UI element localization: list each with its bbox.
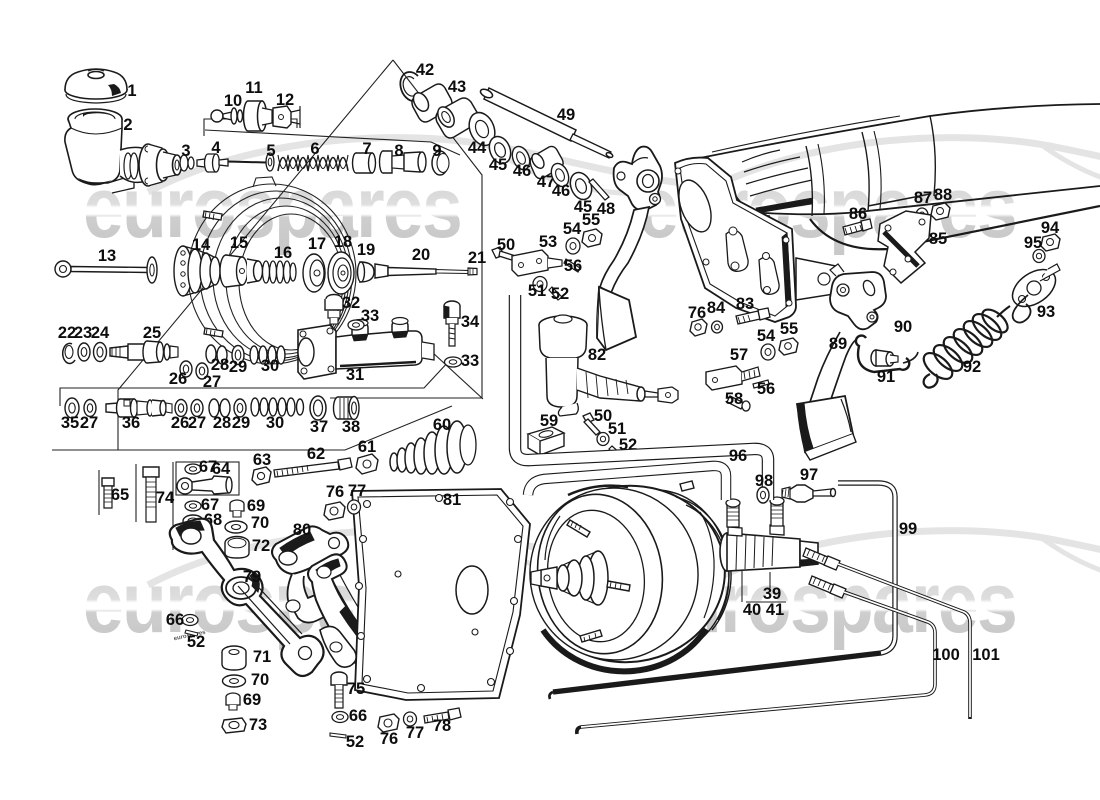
svg-text:74: 74 xyxy=(156,489,175,507)
svg-text:24: 24 xyxy=(91,324,110,342)
svg-text:41: 41 xyxy=(766,601,784,619)
svg-text:13: 13 xyxy=(98,247,116,265)
svg-text:82: 82 xyxy=(588,346,606,364)
svg-text:97: 97 xyxy=(800,466,818,484)
svg-text:25: 25 xyxy=(143,324,161,342)
svg-text:45: 45 xyxy=(489,156,507,174)
svg-text:76: 76 xyxy=(688,304,706,322)
svg-text:28: 28 xyxy=(213,414,231,432)
svg-text:72: 72 xyxy=(252,537,270,555)
svg-text:31: 31 xyxy=(346,366,364,384)
svg-text:29: 29 xyxy=(229,358,247,376)
svg-text:42: 42 xyxy=(416,61,434,79)
svg-text:29: 29 xyxy=(232,414,250,432)
svg-text:55: 55 xyxy=(780,320,798,338)
svg-text:1: 1 xyxy=(127,82,136,100)
svg-text:100: 100 xyxy=(932,646,960,664)
svg-text:43: 43 xyxy=(448,78,466,96)
svg-text:64: 64 xyxy=(212,460,231,478)
svg-text:18: 18 xyxy=(334,233,352,251)
svg-text:28: 28 xyxy=(211,356,229,374)
svg-text:81: 81 xyxy=(443,491,461,509)
svg-text:62: 62 xyxy=(307,445,325,463)
svg-text:8: 8 xyxy=(394,142,403,160)
svg-text:23: 23 xyxy=(74,324,92,342)
svg-text:56: 56 xyxy=(757,380,775,398)
svg-text:6: 6 xyxy=(310,140,319,158)
svg-text:35: 35 xyxy=(61,414,79,432)
svg-text:27: 27 xyxy=(188,414,206,432)
svg-text:2: 2 xyxy=(123,116,132,134)
svg-text:54: 54 xyxy=(563,220,582,238)
svg-text:75: 75 xyxy=(347,680,365,698)
svg-text:58: 58 xyxy=(725,390,743,408)
svg-text:88: 88 xyxy=(934,186,952,204)
svg-text:78: 78 xyxy=(433,717,451,735)
svg-text:51: 51 xyxy=(528,282,546,300)
svg-text:5: 5 xyxy=(266,142,275,160)
svg-text:14: 14 xyxy=(192,236,211,254)
svg-text:73: 73 xyxy=(249,716,267,734)
svg-text:9: 9 xyxy=(432,142,441,160)
svg-text:3: 3 xyxy=(181,142,190,160)
svg-text:70: 70 xyxy=(251,514,269,532)
svg-text:40: 40 xyxy=(743,601,761,619)
svg-text:57: 57 xyxy=(730,346,748,364)
svg-text:76: 76 xyxy=(380,730,398,748)
svg-text:44: 44 xyxy=(468,139,487,157)
svg-text:65: 65 xyxy=(111,486,129,504)
svg-text:36: 36 xyxy=(122,414,140,432)
svg-text:52: 52 xyxy=(551,285,569,303)
svg-text:46: 46 xyxy=(552,182,570,200)
svg-text:77: 77 xyxy=(406,724,424,742)
svg-text:59: 59 xyxy=(540,412,558,430)
svg-text:26: 26 xyxy=(169,370,187,388)
svg-text:80: 80 xyxy=(293,521,311,539)
svg-text:26: 26 xyxy=(171,414,189,432)
svg-text:86: 86 xyxy=(849,205,867,223)
svg-text:83: 83 xyxy=(736,295,754,313)
svg-text:21: 21 xyxy=(468,249,486,267)
svg-text:52: 52 xyxy=(187,633,205,651)
svg-text:56: 56 xyxy=(564,257,582,275)
svg-text:76: 76 xyxy=(326,483,344,501)
svg-text:54: 54 xyxy=(757,327,776,345)
svg-text:99: 99 xyxy=(899,520,917,538)
svg-text:27: 27 xyxy=(203,373,221,391)
svg-text:15: 15 xyxy=(230,234,248,252)
svg-text:19: 19 xyxy=(357,241,375,259)
svg-text:91: 91 xyxy=(877,368,895,386)
svg-text:69: 69 xyxy=(247,497,265,515)
svg-text:11: 11 xyxy=(245,79,262,97)
svg-text:60: 60 xyxy=(433,416,451,434)
svg-text:10: 10 xyxy=(224,92,242,110)
svg-text:96: 96 xyxy=(729,447,747,465)
svg-text:49: 49 xyxy=(557,106,575,124)
svg-text:17: 17 xyxy=(308,235,326,253)
svg-text:71: 71 xyxy=(253,648,271,666)
svg-text:30: 30 xyxy=(261,357,279,375)
svg-text:20: 20 xyxy=(412,246,430,264)
svg-text:69: 69 xyxy=(243,691,261,709)
svg-text:87: 87 xyxy=(914,189,932,207)
svg-text:94: 94 xyxy=(1041,219,1060,237)
svg-text:66: 66 xyxy=(166,611,184,629)
svg-text:52: 52 xyxy=(346,733,364,751)
svg-text:4: 4 xyxy=(211,139,221,157)
svg-text:16: 16 xyxy=(274,244,292,262)
svg-text:55: 55 xyxy=(582,211,600,229)
svg-text:32: 32 xyxy=(342,294,360,312)
svg-text:84: 84 xyxy=(707,299,726,317)
svg-text:66: 66 xyxy=(349,707,367,725)
svg-text:95: 95 xyxy=(1024,234,1042,252)
svg-text:30: 30 xyxy=(266,414,284,432)
svg-text:63: 63 xyxy=(253,451,271,469)
svg-text:61: 61 xyxy=(358,438,376,456)
svg-text:101: 101 xyxy=(972,646,1000,664)
svg-text:85: 85 xyxy=(929,230,947,248)
svg-text:12: 12 xyxy=(276,91,294,109)
svg-text:7: 7 xyxy=(362,140,371,158)
svg-text:77: 77 xyxy=(348,482,366,500)
svg-text:37: 37 xyxy=(310,418,328,436)
svg-text:79: 79 xyxy=(243,568,261,586)
svg-text:93: 93 xyxy=(1037,303,1055,321)
svg-text:34: 34 xyxy=(461,313,480,331)
svg-text:33: 33 xyxy=(461,352,479,370)
svg-text:46: 46 xyxy=(513,162,531,180)
svg-text:38: 38 xyxy=(342,418,360,436)
svg-text:70: 70 xyxy=(251,671,269,689)
svg-text:53: 53 xyxy=(539,233,557,251)
svg-text:33: 33 xyxy=(361,307,379,325)
svg-text:90: 90 xyxy=(894,318,912,336)
svg-text:98: 98 xyxy=(755,472,773,490)
svg-text:50: 50 xyxy=(497,236,515,254)
svg-text:27: 27 xyxy=(80,414,98,432)
svg-text:89: 89 xyxy=(829,335,847,353)
svg-text:92: 92 xyxy=(963,358,981,376)
